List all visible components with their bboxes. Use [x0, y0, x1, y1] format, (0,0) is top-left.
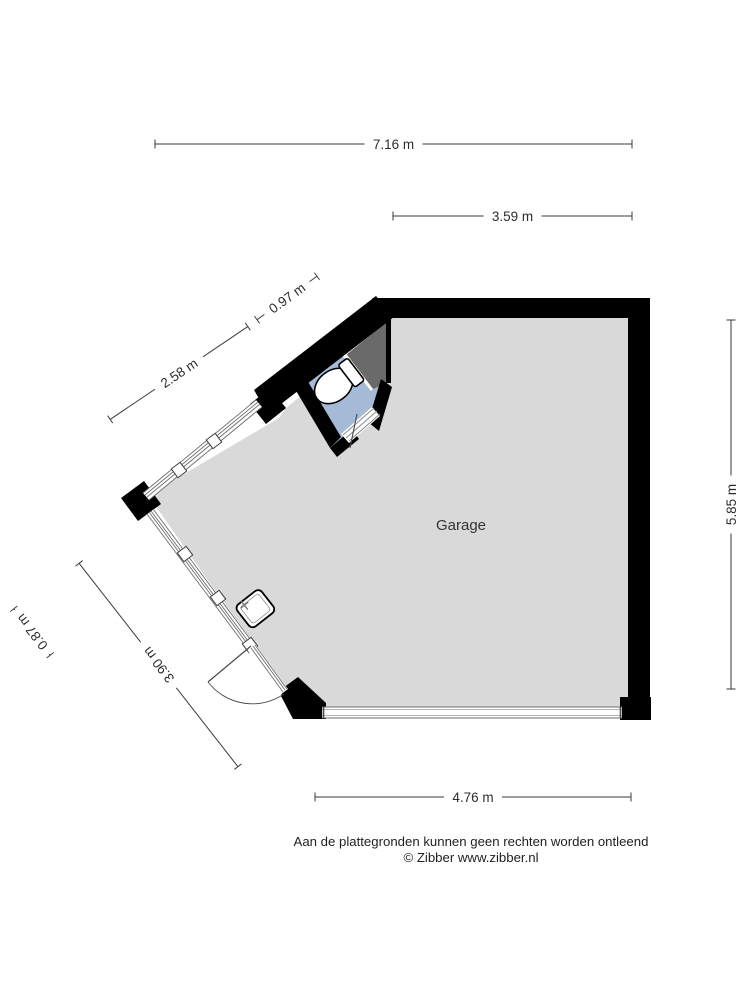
footer-copyright: © Zibber www.zibber.nl: [403, 850, 538, 865]
room-label: Garage: [436, 517, 486, 534]
door-leaf: [208, 646, 251, 682]
dimension-label: 4.76 m: [452, 790, 493, 805]
floorplan-canvas: 7.16 m 3.59 m 2.58 m 0.97 m 5.85 m: [0, 0, 750, 1000]
dimension-upper-diag-long: 2.58 m: [105, 319, 253, 427]
dimension-bottom: 4.76 m: [315, 788, 631, 806]
dimension-right: 5.85 m: [722, 320, 740, 689]
footer-disclaimer: Aan de plattegronden kunnen geen rechten…: [294, 834, 649, 849]
dimension-top: 7.16 m: [155, 135, 632, 153]
dimension-label: 7.16 m: [373, 137, 414, 152]
door-swing-arc: [208, 682, 284, 704]
dimension-upper-diag-short: 0.97 m: [252, 269, 322, 327]
corner-bottom-right: [620, 697, 651, 720]
wall-right: [628, 298, 650, 720]
floorplan-page: 7.16 m 3.59 m 2.58 m 0.97 m 5.85 m: [0, 0, 750, 1000]
wall-top: [372, 298, 650, 318]
dimension-top-right: 3.59 m: [393, 207, 632, 225]
dimension-label: 3.59 m: [492, 209, 533, 224]
dimension-lower-diag-short: 0.87 m: [7, 603, 58, 661]
dimension-label: 5.85 m: [724, 484, 739, 525]
garage-door-band: [322, 707, 622, 719]
toilet-wall-thin: [386, 317, 391, 383]
